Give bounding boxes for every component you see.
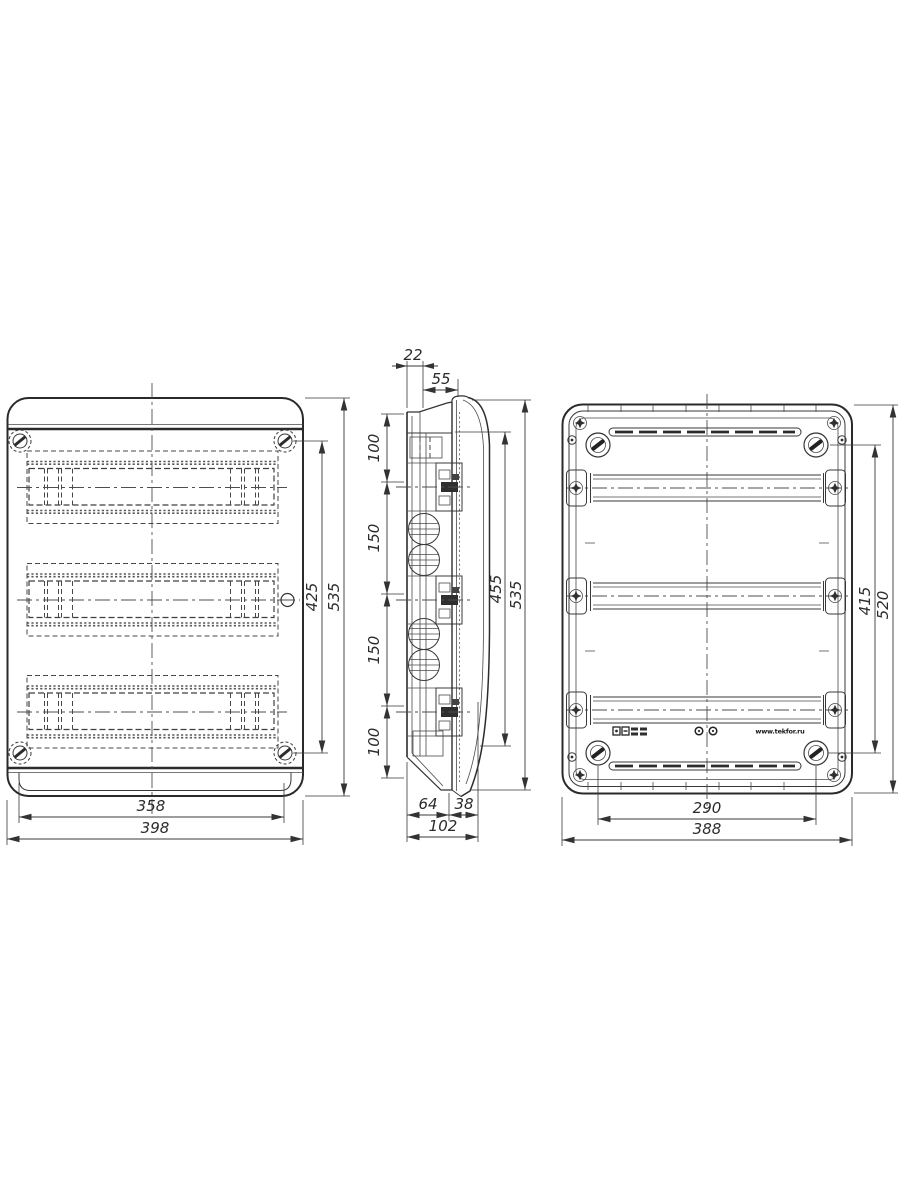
dim-label-520: 520 (874, 591, 892, 620)
dim-label-290: 290 (693, 799, 722, 817)
dim-label-38: 38 (454, 795, 473, 813)
rear-bottom-slot (609, 762, 801, 770)
dim-label-102: 102 (429, 817, 458, 835)
front-corner-screw (274, 430, 296, 452)
side-view: 22 55 100 150 150 100 455 (365, 346, 531, 842)
rear-view: www.tekfor.ru 415 520 290 388 (562, 394, 898, 846)
front-corner-screw (9, 742, 31, 764)
front-bottom-inner-edge (19, 773, 291, 791)
dim-front-door-width: 358 (19, 783, 284, 823)
dim-side-knockout-pitch: 100 150 150 100 (365, 414, 404, 778)
dim-label-358: 358 (137, 797, 166, 815)
rear-corner-screw (828, 769, 841, 782)
rear-corner-screw (828, 417, 841, 430)
dim-label-535: 535 (325, 583, 343, 612)
dim-side-door-height: 455 (455, 432, 511, 746)
front-view: 425 535 358 398 (7, 383, 350, 845)
rear-din-rail (566, 692, 848, 728)
front-module-row (17, 676, 287, 749)
rear-top-slot (609, 428, 801, 436)
side-cable-knockout (409, 650, 440, 681)
dim-label-150-mid2: 150 (365, 636, 383, 665)
dim-label-100-bottom: 100 (365, 728, 383, 757)
certification-marks (613, 727, 647, 736)
front-module-row (17, 451, 287, 524)
rear-corner-screw (574, 417, 587, 430)
technical-drawing: 425 535 358 398 (0, 0, 900, 1200)
side-cable-knockout (409, 619, 440, 650)
side-top-edge (407, 402, 452, 412)
dim-label-535-side: 535 (507, 581, 525, 610)
dim-side-depths: 64 38 102 (407, 702, 478, 842)
rear-marking: www.tekfor.ru (613, 727, 805, 736)
front-corner-screw (274, 742, 296, 764)
side-cable-knockout (409, 545, 440, 576)
dim-label-425: 425 (303, 583, 321, 612)
brand-website-text: www.tekfor.ru (755, 728, 805, 736)
dim-label-100-top: 100 (365, 434, 383, 463)
dim-label-415: 415 (856, 587, 874, 616)
rear-mount-knockout (586, 433, 610, 457)
dim-label-150-mid1: 150 (365, 524, 383, 553)
side-cable-knockout (409, 514, 440, 545)
marking-holes (695, 727, 717, 735)
dim-label-398: 398 (141, 819, 170, 837)
rear-mount-knockout (804, 433, 828, 457)
dim-label-55: 55 (431, 370, 450, 388)
dim-side-door-offset: 55 (423, 370, 458, 397)
rear-corner-screw (574, 769, 587, 782)
rear-din-rail (566, 470, 848, 506)
dim-label-64: 64 (418, 795, 437, 813)
side-bottom-edge (407, 757, 452, 790)
front-corner-screw (9, 430, 31, 452)
dim-label-22: 22 (403, 346, 422, 364)
front-module-row (17, 564, 287, 637)
rear-din-rail (566, 578, 848, 614)
dim-label-455: 455 (487, 575, 505, 604)
dim-front-hinge-span: 425 (293, 441, 328, 753)
dim-label-388: 388 (693, 820, 722, 838)
side-door-front-curve (461, 398, 490, 797)
rear-mount-knockout (586, 741, 610, 765)
rear-mount-knockout (804, 741, 828, 765)
